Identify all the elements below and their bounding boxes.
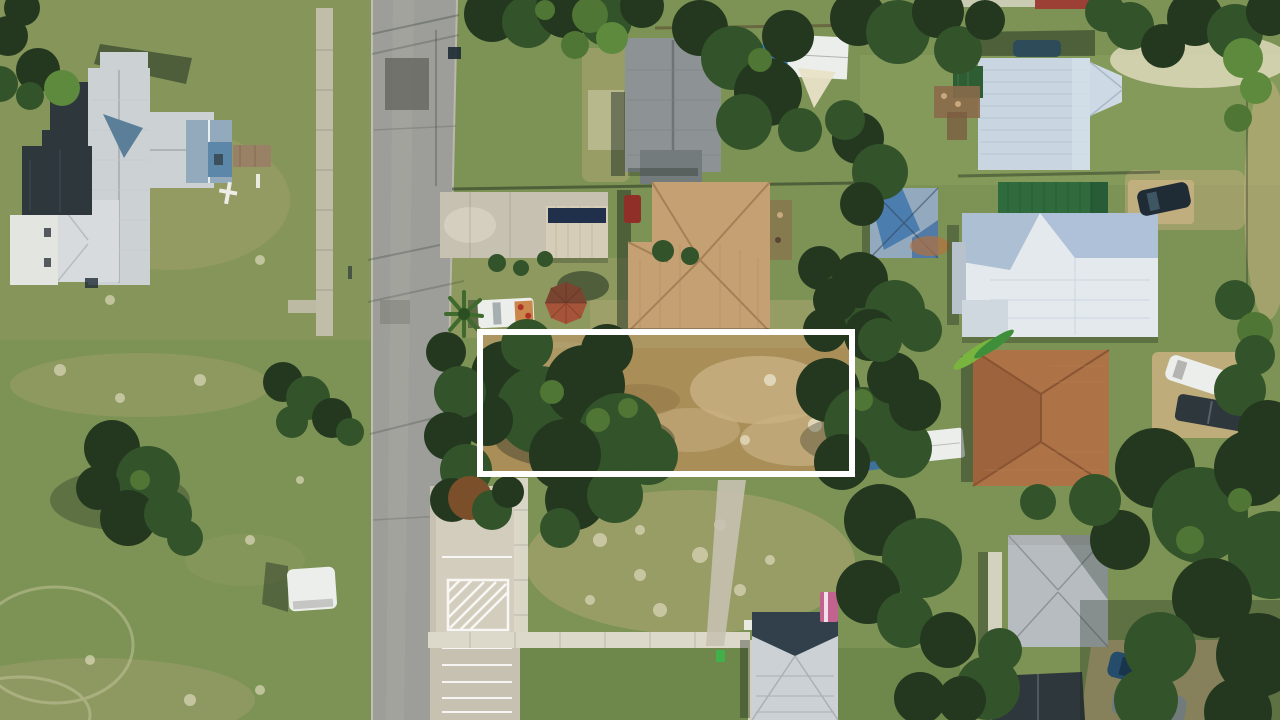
annex-roof xyxy=(10,215,58,285)
solar-panel xyxy=(548,208,606,223)
utility-pole xyxy=(348,266,352,279)
car-behind-house xyxy=(1013,40,1061,57)
aerial-photo xyxy=(0,0,1280,720)
carport xyxy=(546,206,608,263)
house-brown-roof xyxy=(961,350,1109,486)
ramp-walkway xyxy=(233,145,271,167)
house-right-white-blue-roof xyxy=(947,213,1158,343)
green-utility-box xyxy=(716,650,725,662)
trash-bin xyxy=(448,47,461,59)
rear-deck xyxy=(770,200,792,260)
pink-play-structure xyxy=(820,592,838,622)
white-van-left-field xyxy=(262,562,337,612)
red-car xyxy=(624,195,641,223)
house-green-metal-roof xyxy=(998,182,1108,216)
